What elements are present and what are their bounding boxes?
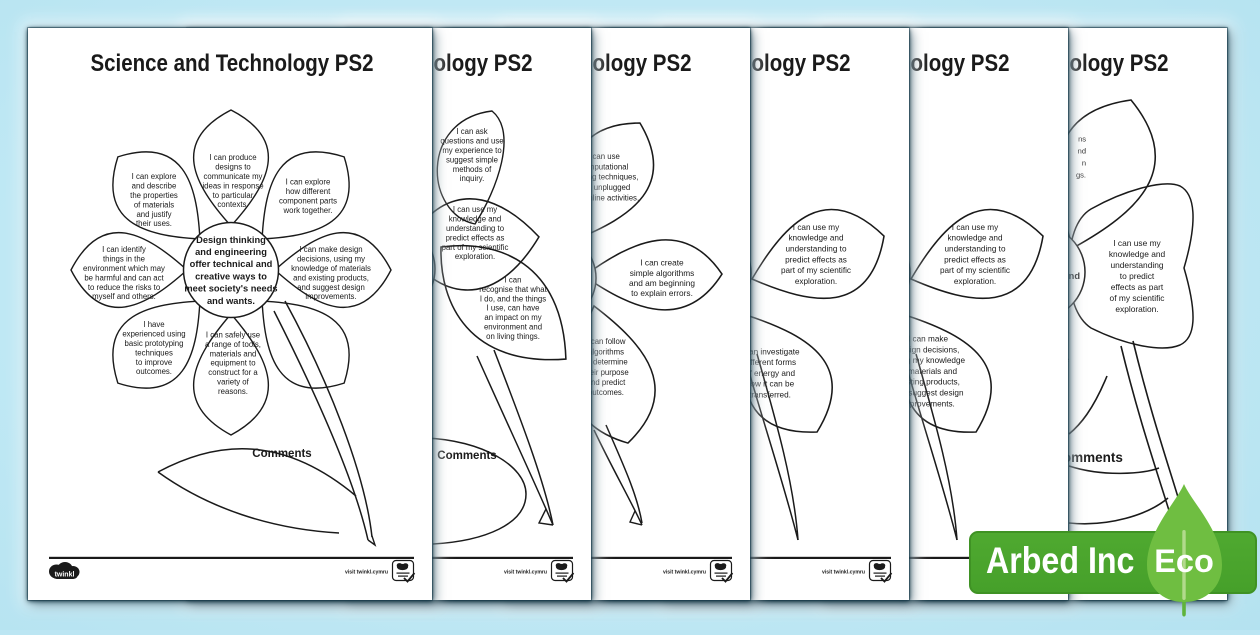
svg-text:visit twinkl.cymru: visit twinkl.cymru — [822, 570, 865, 576]
svg-text:I can explorehow differentcomp: I can explorehow differentcomponent part… — [279, 178, 337, 215]
svg-text:I can createsimple algorithmsa: I can createsimple algorithmsand am begi… — [629, 258, 695, 299]
svg-text:nd: nd — [1069, 271, 1081, 281]
svg-text:Eco: Eco — [1154, 543, 1214, 579]
svg-text:I can use myknowledge andunder: I can use myknowledge andunderstanding t… — [940, 223, 1010, 286]
svg-text:I can use myknowledge andunder: I can use myknowledge andunderstandingto… — [1109, 238, 1166, 314]
svg-text:I can identifythings in theenv: I can identifythings in theenvironment w… — [83, 245, 165, 301]
svg-text:visit twinkl.cymru: visit twinkl.cymru — [504, 570, 547, 576]
svg-text:I haveexperienced usingbasic p: I haveexperienced usingbasic prototyping… — [122, 320, 185, 376]
svg-text:visit twinkl.cymru: visit twinkl.cymru — [345, 570, 388, 576]
svg-text:I can safely usea range of too: I can safely usea range of tools,materia… — [205, 331, 261, 396]
svg-text:visit twinkl.cymru: visit twinkl.cymru — [663, 570, 706, 576]
svg-text:I can askquestions and usemy e: I can askquestions and usemy experience … — [440, 127, 503, 183]
svg-text:Science and Technology PS2: Science and Technology PS2 — [91, 50, 374, 77]
svg-text:twinkl: twinkl — [55, 572, 75, 579]
svg-text:I can exploreand describethe p: I can exploreand describethe propertieso… — [130, 172, 178, 228]
svg-text:Comments: Comments — [252, 448, 311, 460]
svg-text:I canrecognise that whatI do,: I canrecognise that whatI do, and the th… — [479, 276, 547, 341]
svg-text:nsndngs.: nsndngs. — [1076, 135, 1086, 180]
svg-text:Comments: Comments — [437, 450, 496, 462]
svg-text:I can use myknowledge andunder: I can use myknowledge andunderstanding t… — [442, 205, 509, 261]
svg-text:I can use myknowledge andunder: I can use myknowledge andunderstanding t… — [781, 223, 851, 286]
